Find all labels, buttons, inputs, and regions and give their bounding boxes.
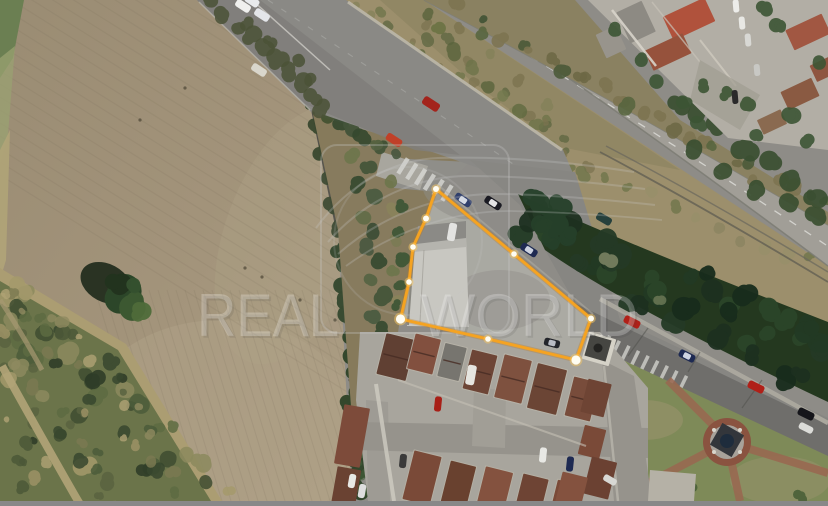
svg-text:WORLD: WORLD <box>420 282 638 349</box>
svg-text:REAL: REAL <box>197 282 339 349</box>
